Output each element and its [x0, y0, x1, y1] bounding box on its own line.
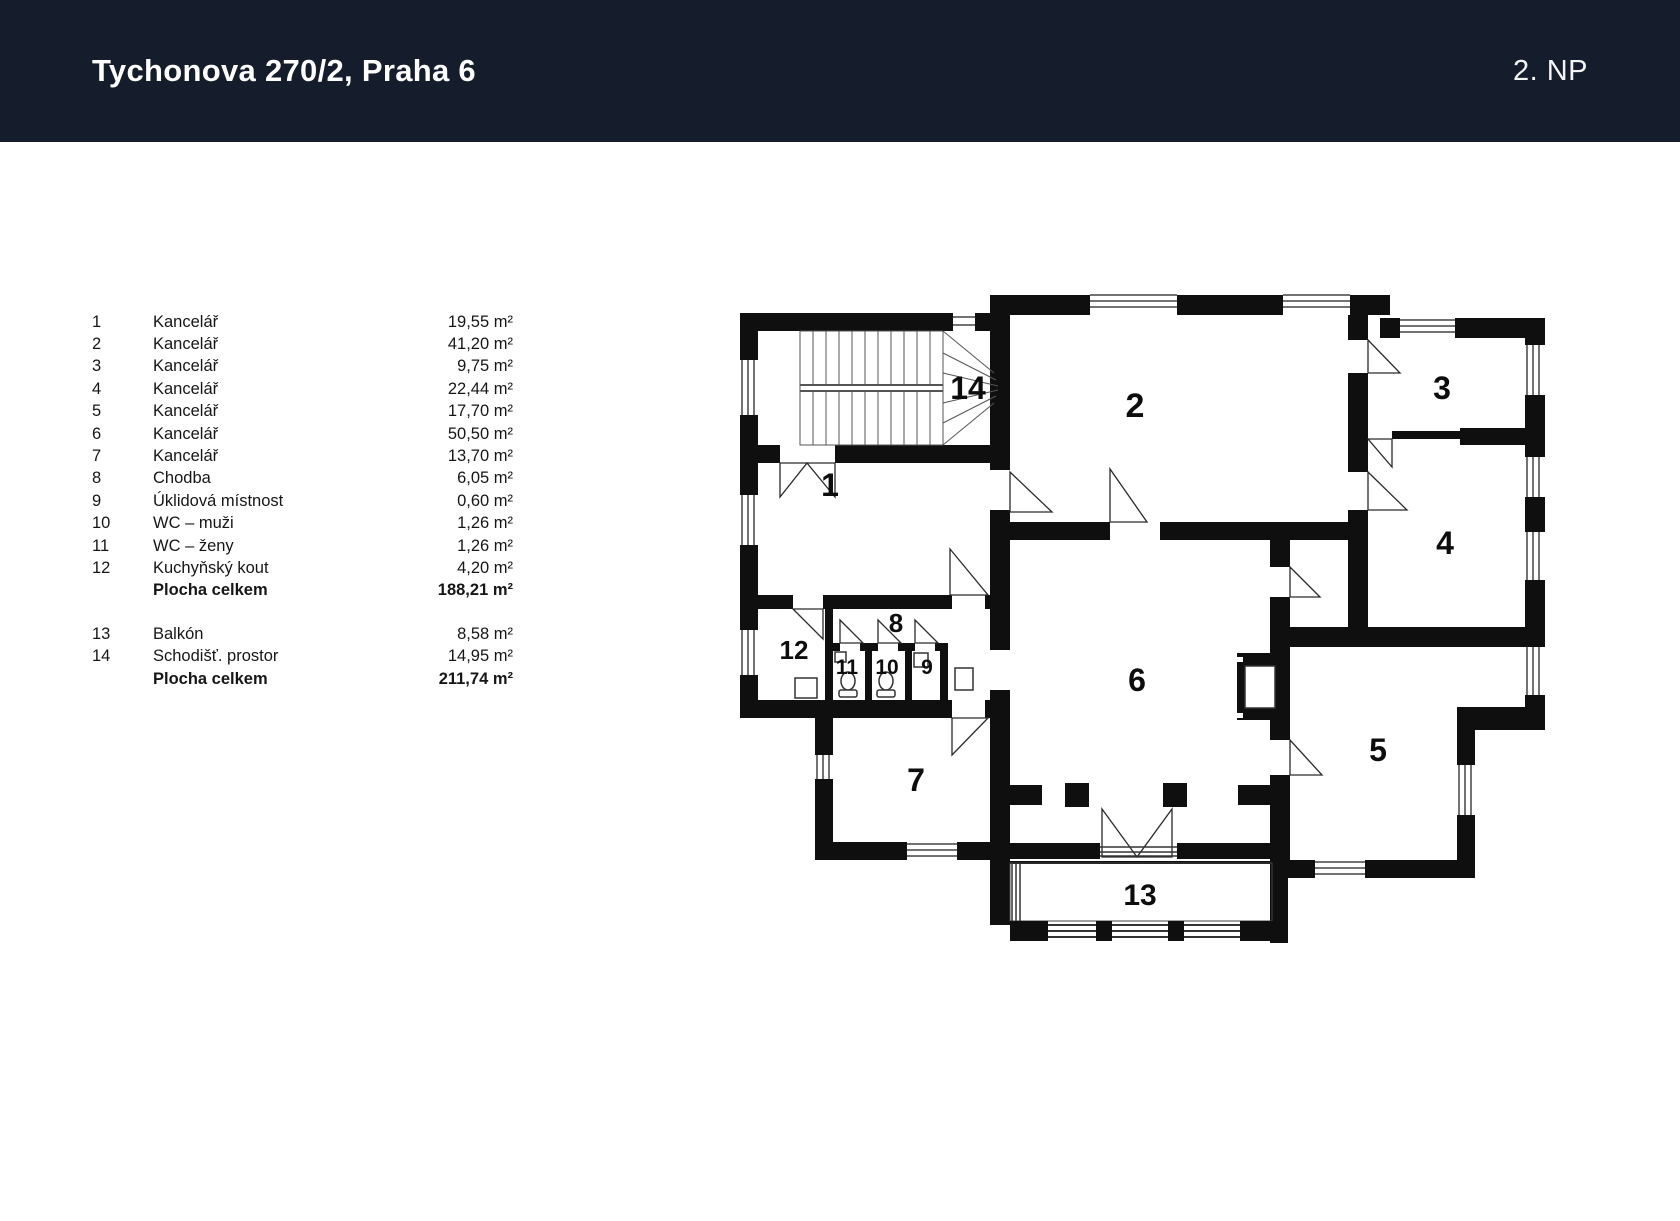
sink-icon [955, 668, 973, 690]
room-label-14: 14 [950, 370, 986, 406]
room-number: 10 [92, 514, 153, 533]
room-name: Kancelář [153, 402, 448, 421]
chimney [1237, 653, 1290, 720]
room-label-5: 5 [1369, 732, 1387, 768]
room-number: 8 [92, 469, 153, 488]
room-name: Schodišť. prostor [153, 647, 448, 666]
legend-row: 6Kancelář50,50 m² [92, 423, 513, 445]
legend-row: 4Kancelář22,44 m² [92, 378, 513, 400]
room-area: 8,58 m² [457, 625, 513, 644]
room-area: 4,20 m² [457, 559, 513, 578]
room-name: Chodba [153, 469, 457, 488]
room-name: WC – muži [153, 514, 457, 533]
room-label-13: 13 [1123, 879, 1156, 912]
room-number: 3 [92, 357, 153, 376]
room-name: Kuchyňský kout [153, 559, 457, 578]
room-area: 9,75 m² [457, 357, 513, 376]
room-area: 13,70 m² [448, 447, 513, 466]
room-number: 14 [92, 647, 153, 666]
floor-plan: 1 2 3 4 5 6 7 8 9 10 11 12 13 14 [700, 285, 1560, 955]
floor-label: 2. NP [1513, 55, 1588, 88]
room-area: 22,44 m² [448, 380, 513, 399]
room-number: 4 [92, 380, 153, 399]
room-number: 11 [92, 537, 153, 556]
legend-row: 11WC – ženy1,26 m² [92, 535, 513, 557]
room-name: Kancelář [153, 447, 448, 466]
room-name: Kancelář [153, 335, 448, 354]
room-area: 1,26 m² [457, 537, 513, 556]
subtotal-label: Plocha celkem [153, 581, 438, 600]
room-number: 2 [92, 335, 153, 354]
floor-plan-svg: 1 2 3 4 5 6 7 8 9 10 11 12 13 14 [700, 285, 1560, 955]
legend-total-row: Plocha celkem211,74 m² [92, 668, 513, 690]
room-number: 5 [92, 402, 153, 421]
room-name: Kancelář [153, 380, 448, 399]
room-label-10: 10 [875, 656, 898, 679]
legend-row: 13Balkón8,58 m² [92, 623, 513, 645]
legend-row: 2Kancelář41,20 m² [92, 333, 513, 355]
room-area: 41,20 m² [448, 335, 513, 354]
room-name: Kancelář [153, 425, 448, 444]
room-label-6: 6 [1128, 662, 1146, 698]
room-number: 6 [92, 425, 153, 444]
legend-row: 5Kancelář17,70 m² [92, 401, 513, 423]
room-name: Úklidová místnost [153, 492, 457, 511]
room-number: 7 [92, 447, 153, 466]
room-number: 13 [92, 625, 153, 644]
legend-row: 7Kancelář13,70 m² [92, 445, 513, 467]
room-area: 0,60 m² [457, 492, 513, 511]
page: { "header": { "title": "Tychonova 270/2,… [0, 0, 1680, 1221]
room-area: 19,55 m² [448, 313, 513, 332]
room-label-2: 2 [1126, 387, 1145, 425]
room-area: 14,95 m² [448, 647, 513, 666]
total-area: 211,74 m² [439, 670, 513, 689]
room-label-12: 12 [780, 635, 809, 665]
subtotal-area: 188,21 m² [438, 581, 513, 600]
room-label-8: 8 [889, 608, 903, 638]
room-area: 50,50 m² [448, 425, 513, 444]
legend-subtotal-row: Plocha celkem188,21 m² [92, 580, 513, 602]
room-label-7: 7 [907, 762, 925, 798]
legend-spacer [92, 602, 513, 623]
windows [736, 289, 1547, 882]
legend-row: 12Kuchyňský kout4,20 m² [92, 557, 513, 579]
room-number: 12 [92, 559, 153, 578]
legend-row: 9Úklidová místnost0,60 m² [92, 490, 513, 512]
legend-row: 8Chodba6,05 m² [92, 468, 513, 490]
legend-row: 10WC – muži1,26 m² [92, 513, 513, 535]
room-number: 9 [92, 492, 153, 511]
sink-icon [795, 678, 817, 698]
legend-table: 1Kancelář19,55 m² 2Kancelář41,20 m² 3Kan… [92, 311, 513, 690]
page-title: Tychonova 270/2, Praha 6 [92, 53, 476, 89]
room-name: Balkón [153, 625, 457, 644]
room-name: Kancelář [153, 357, 457, 376]
header-bar: Tychonova 270/2, Praha 6 2. NP [0, 0, 1680, 142]
total-label: Plocha celkem [153, 670, 439, 689]
legend-row: 1Kancelář19,55 m² [92, 311, 513, 333]
room-area: 1,26 m² [457, 514, 513, 533]
room-name: Kancelář [153, 313, 448, 332]
room-label-4: 4 [1436, 525, 1454, 561]
room-name: WC – ženy [153, 537, 457, 556]
room-label-1: 1 [821, 467, 839, 503]
room-label-11: 11 [836, 656, 859, 679]
room-area: 6,05 m² [457, 469, 513, 488]
legend-row: 14Schodišť. prostor14,95 m² [92, 645, 513, 667]
room-number: 1 [92, 313, 153, 332]
room-label-3: 3 [1433, 370, 1451, 406]
legend-row: 3Kancelář9,75 m² [92, 356, 513, 378]
room-area: 17,70 m² [448, 402, 513, 421]
room-label-9: 9 [921, 656, 933, 679]
